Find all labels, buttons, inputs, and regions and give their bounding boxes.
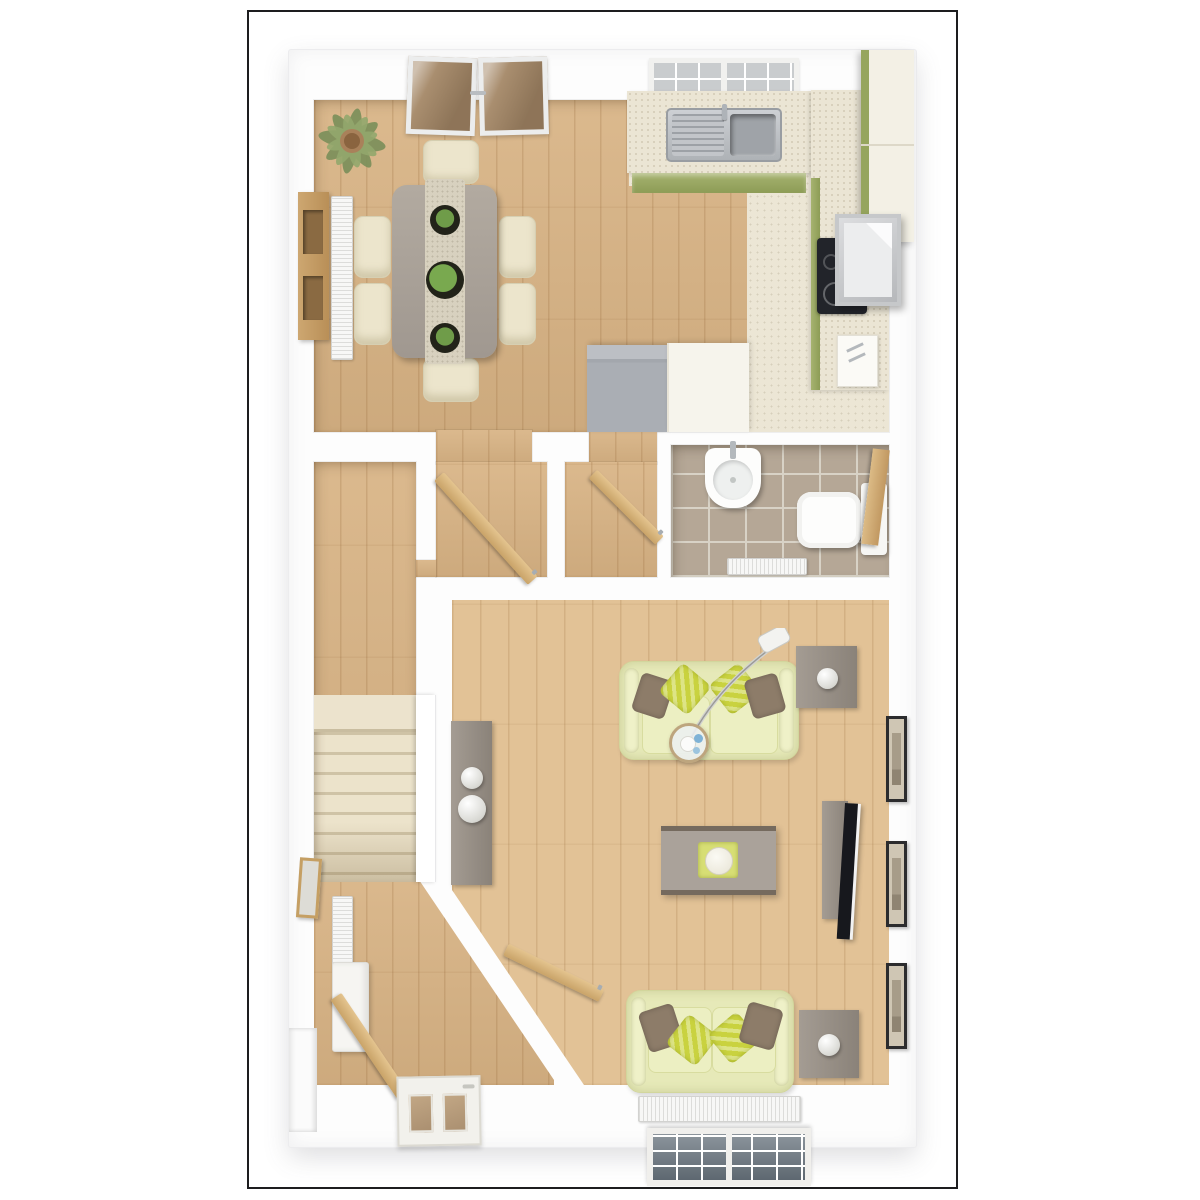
hall-doorway-patch-kitchen	[589, 430, 657, 464]
dining-chair-head	[423, 140, 479, 184]
cup-blue	[693, 747, 700, 754]
dining-radiator	[331, 196, 353, 360]
picture-art	[892, 733, 901, 785]
sink-basin	[730, 114, 776, 156]
hall-doorway-patch-dining	[436, 430, 532, 464]
outer-walls	[289, 50, 916, 1147]
basin-tap	[730, 441, 736, 459]
dining-table	[392, 185, 497, 358]
appliance-handle	[846, 342, 864, 352]
palm-plant	[306, 95, 398, 187]
dining-chair-foot	[423, 358, 479, 402]
console-bowl-large	[458, 795, 486, 823]
dining-chair-right-1	[499, 216, 536, 278]
potted-plant-2	[426, 261, 464, 299]
fridge-unit	[587, 345, 667, 432]
hall-mirror	[296, 857, 322, 918]
dining-wall-shelf-unit	[298, 192, 329, 340]
dining-chair-left-1	[354, 216, 391, 278]
picture-art	[892, 980, 901, 1032]
front-door-glass-left	[409, 1094, 434, 1132]
vestibule-floor	[436, 462, 547, 577]
wall-picture-2	[886, 841, 907, 927]
coffee-table	[661, 826, 776, 895]
wall-picture-1	[886, 716, 907, 802]
coffee-table-bowl	[705, 847, 733, 875]
staircase	[314, 695, 416, 882]
kitchen-green-cabinet-front	[632, 173, 806, 193]
side-table-1	[796, 646, 857, 708]
cooker-hood	[835, 214, 901, 306]
plan-frame	[247, 10, 958, 1189]
french-doors	[407, 57, 549, 137]
cup-blue	[694, 734, 703, 743]
wc-radiator	[727, 558, 807, 575]
french-door-right-leaf	[478, 56, 549, 136]
entrance-recess	[289, 1028, 317, 1132]
counter-appliance-block	[667, 343, 749, 432]
toilet-bowl	[797, 492, 861, 548]
potted-plant-3	[430, 323, 460, 353]
round-glass-table	[669, 723, 709, 763]
cloakroom	[671, 445, 889, 577]
stair-bottom-shadow	[314, 822, 416, 882]
shelf-cubby	[303, 210, 323, 254]
side-table-lamp	[817, 668, 838, 689]
french-door-left-leaf	[406, 56, 478, 136]
dining-chair-right-2	[499, 283, 536, 345]
front-door	[396, 1075, 481, 1146]
picture-art	[892, 858, 901, 910]
stair-landing	[314, 695, 416, 732]
side-table-lamp	[818, 1034, 840, 1056]
sink-tap	[722, 104, 727, 120]
basin-drain	[730, 477, 736, 483]
tall-console-with-bowls	[451, 721, 492, 885]
entrance-radiator	[332, 896, 353, 972]
side-table-2	[799, 1010, 859, 1078]
appliance-handle	[848, 352, 866, 362]
potted-plant-1	[430, 205, 460, 235]
banister-wall	[416, 695, 436, 882]
tall-cabinet-seam	[861, 144, 914, 146]
living-radiator	[638, 1096, 801, 1122]
console-bowl-small	[461, 767, 483, 789]
shelf-cubby	[303, 276, 323, 320]
french-door-handles	[470, 91, 486, 95]
front-door-glass-right	[443, 1094, 468, 1132]
front-door-handle	[463, 1084, 475, 1088]
dining-chair-left-2	[354, 283, 391, 345]
kitchen-sink	[666, 108, 782, 162]
corridor-vestibule-opening	[416, 560, 436, 577]
wall-picture-3	[886, 963, 907, 1049]
sink-drainer	[672, 114, 724, 156]
wc-basin	[705, 448, 761, 508]
small-appliance	[837, 335, 878, 387]
sofa-two-seat	[626, 990, 794, 1093]
living-window	[647, 1128, 811, 1186]
floor-plan-render	[0, 0, 1200, 1200]
